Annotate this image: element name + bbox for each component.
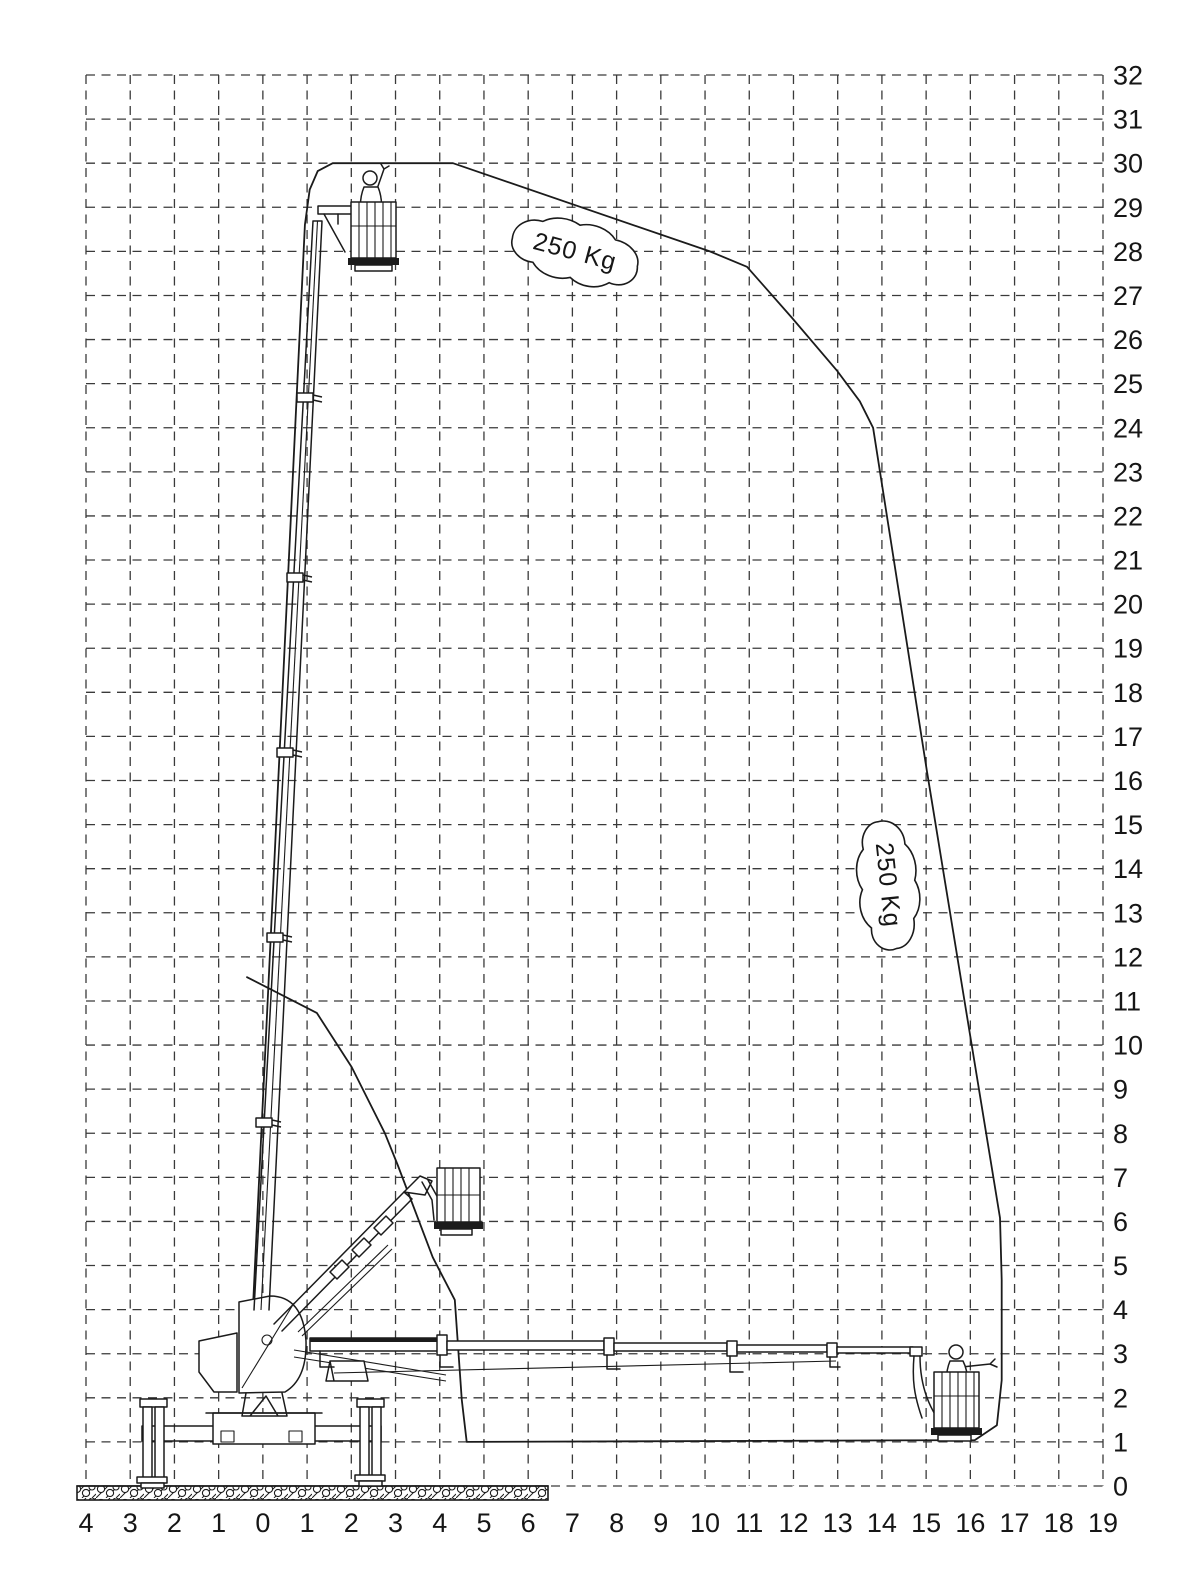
basket-top (348, 202, 399, 271)
x-axis-tick-label: 12 (778, 1508, 808, 1538)
y-axis-tick-label: 18 (1113, 678, 1143, 708)
x-axis-tick-label: 5 (476, 1508, 491, 1538)
y-axis-tick-label: 4 (1113, 1295, 1128, 1325)
x-axis-tick-label: 14 (867, 1508, 897, 1538)
y-axis-tick-label: 27 (1113, 281, 1143, 311)
y-axis-tick-label: 8 (1113, 1119, 1128, 1149)
x-axis-tick-label: 13 (823, 1508, 853, 1538)
boom-horizontal (294, 1335, 936, 1418)
x-axis-tick-label: 8 (609, 1508, 624, 1538)
y-axis-tick-label: 19 (1113, 634, 1143, 664)
y-axis-tick-label: 0 (1113, 1472, 1128, 1502)
basket-mid (434, 1168, 483, 1235)
y-axis-tick-label: 10 (1113, 1031, 1143, 1061)
y-axis-tick-label: 5 (1113, 1251, 1128, 1281)
x-axis-tick-label: 17 (1000, 1508, 1030, 1538)
x-axis-tick-label: 2 (167, 1508, 182, 1538)
x-axis-tick-label: 4 (78, 1508, 93, 1538)
y-axis-tick-label: 21 (1113, 546, 1143, 576)
load-capacity-cloud: 250 Kg (505, 206, 645, 298)
x-axis-tick-label: 1 (300, 1508, 315, 1538)
y-axis-tick-label: 14 (1113, 854, 1143, 884)
x-axis-tick-label: 19 (1088, 1508, 1118, 1538)
x-axis-tick-label: 6 (521, 1508, 536, 1538)
x-axis-tick-label: 4 (432, 1508, 447, 1538)
envelope-chart: 250 Kg250 Kg 432101234567891011121314151… (0, 0, 1200, 1583)
x-axis-tick-label: 15 (911, 1508, 941, 1538)
platform-top (318, 164, 399, 271)
y-axis-tick-label: 1 (1113, 1427, 1128, 1457)
y-axis-tick-label: 30 (1113, 149, 1143, 179)
y-axis-tick-label: 16 (1113, 766, 1143, 796)
x-axis-tick-label: 2 (344, 1508, 359, 1538)
x-axis-tick-label: 10 (690, 1508, 720, 1538)
boom-mid-position (274, 1168, 483, 1336)
y-axis-tick-label: 29 (1113, 193, 1143, 223)
platform-right (931, 1345, 997, 1441)
y-axis-tick-label: 13 (1113, 898, 1143, 928)
x-axis-tick-label: 9 (653, 1508, 668, 1538)
y-axis-tick-label: 6 (1113, 1207, 1128, 1237)
y-axis-tick-label: 11 (1113, 986, 1141, 1016)
y-axis-tick-label: 24 (1113, 413, 1143, 443)
y-axis-tick-label: 12 (1113, 942, 1143, 972)
y-axis-tick-label: 28 (1113, 237, 1143, 267)
y-axis-tick-label: 9 (1113, 1075, 1128, 1105)
y-axis-tick-label: 7 (1113, 1163, 1128, 1193)
y-axis-tick-label: 26 (1113, 325, 1143, 355)
x-axis-tick-label: 0 (255, 1508, 270, 1538)
y-axis-tick-label: 25 (1113, 369, 1143, 399)
y-axis-tick-label: 20 (1113, 590, 1143, 620)
y-axis-tick-label: 32 (1113, 61, 1143, 91)
machine-drawing (77, 164, 997, 1500)
load-capacity-labels: 250 Kg250 Kg (505, 206, 925, 953)
x-axis-tick-label: 3 (123, 1508, 138, 1538)
basket-right (931, 1372, 982, 1441)
x-axis-tick-label: 18 (1044, 1508, 1074, 1538)
x-axis-tick-label: 11 (735, 1508, 763, 1538)
y-axis-tick-label: 23 (1113, 457, 1143, 487)
y-axis-tick-label: 22 (1113, 501, 1143, 531)
x-axis-tick-label: 16 (955, 1508, 985, 1538)
load-capacity-cloud: 250 Kg (851, 818, 925, 953)
telescopic-boom-vertical (254, 221, 322, 1310)
envelope-diagram-page: 250 Kg250 Kg 432101234567891011121314151… (0, 0, 1200, 1583)
x-axis-tick-label: 3 (388, 1508, 403, 1538)
x-axis-tick-label: 1 (211, 1508, 226, 1538)
y-axis-tick-label: 2 (1113, 1383, 1128, 1413)
y-axis-tick-label: 3 (1113, 1339, 1128, 1369)
y-axis-tick-label: 17 (1113, 722, 1143, 752)
y-axis-tick-label: 31 (1113, 105, 1143, 135)
y-axis-tick-label: 15 (1113, 810, 1143, 840)
x-axis-tick-label: 7 (565, 1508, 580, 1538)
